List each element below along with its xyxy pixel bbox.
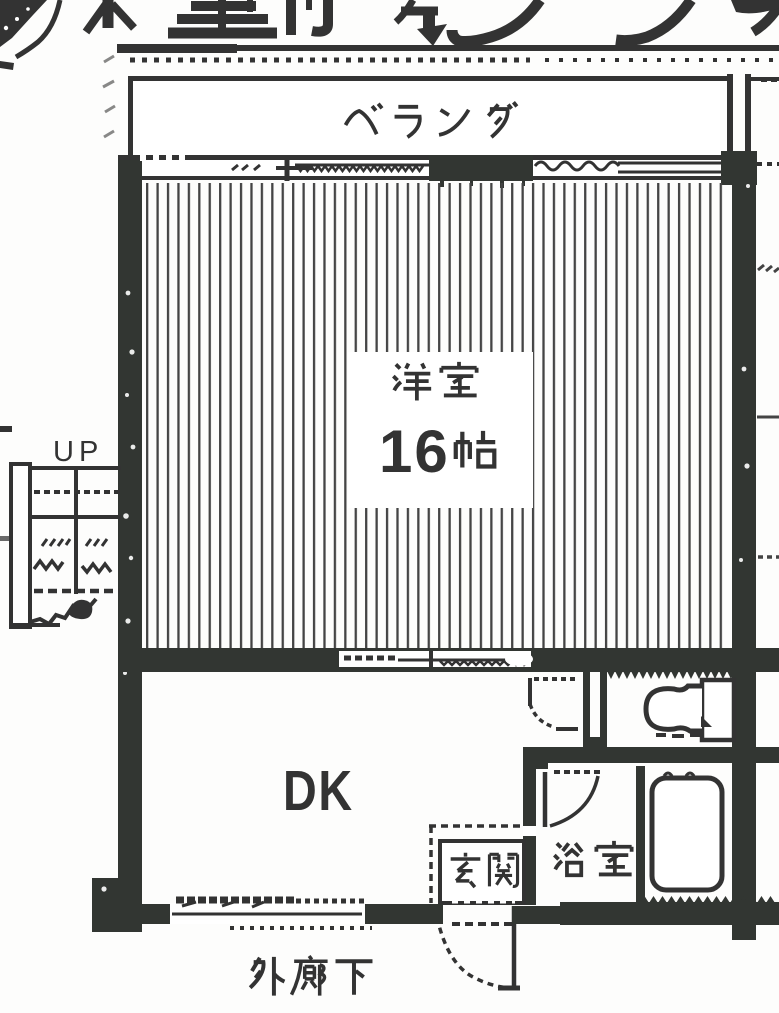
svg-text:DK: DK [283, 760, 354, 823]
svg-text:16: 16 [379, 418, 450, 485]
svg-text:UP: UP [53, 436, 103, 468]
